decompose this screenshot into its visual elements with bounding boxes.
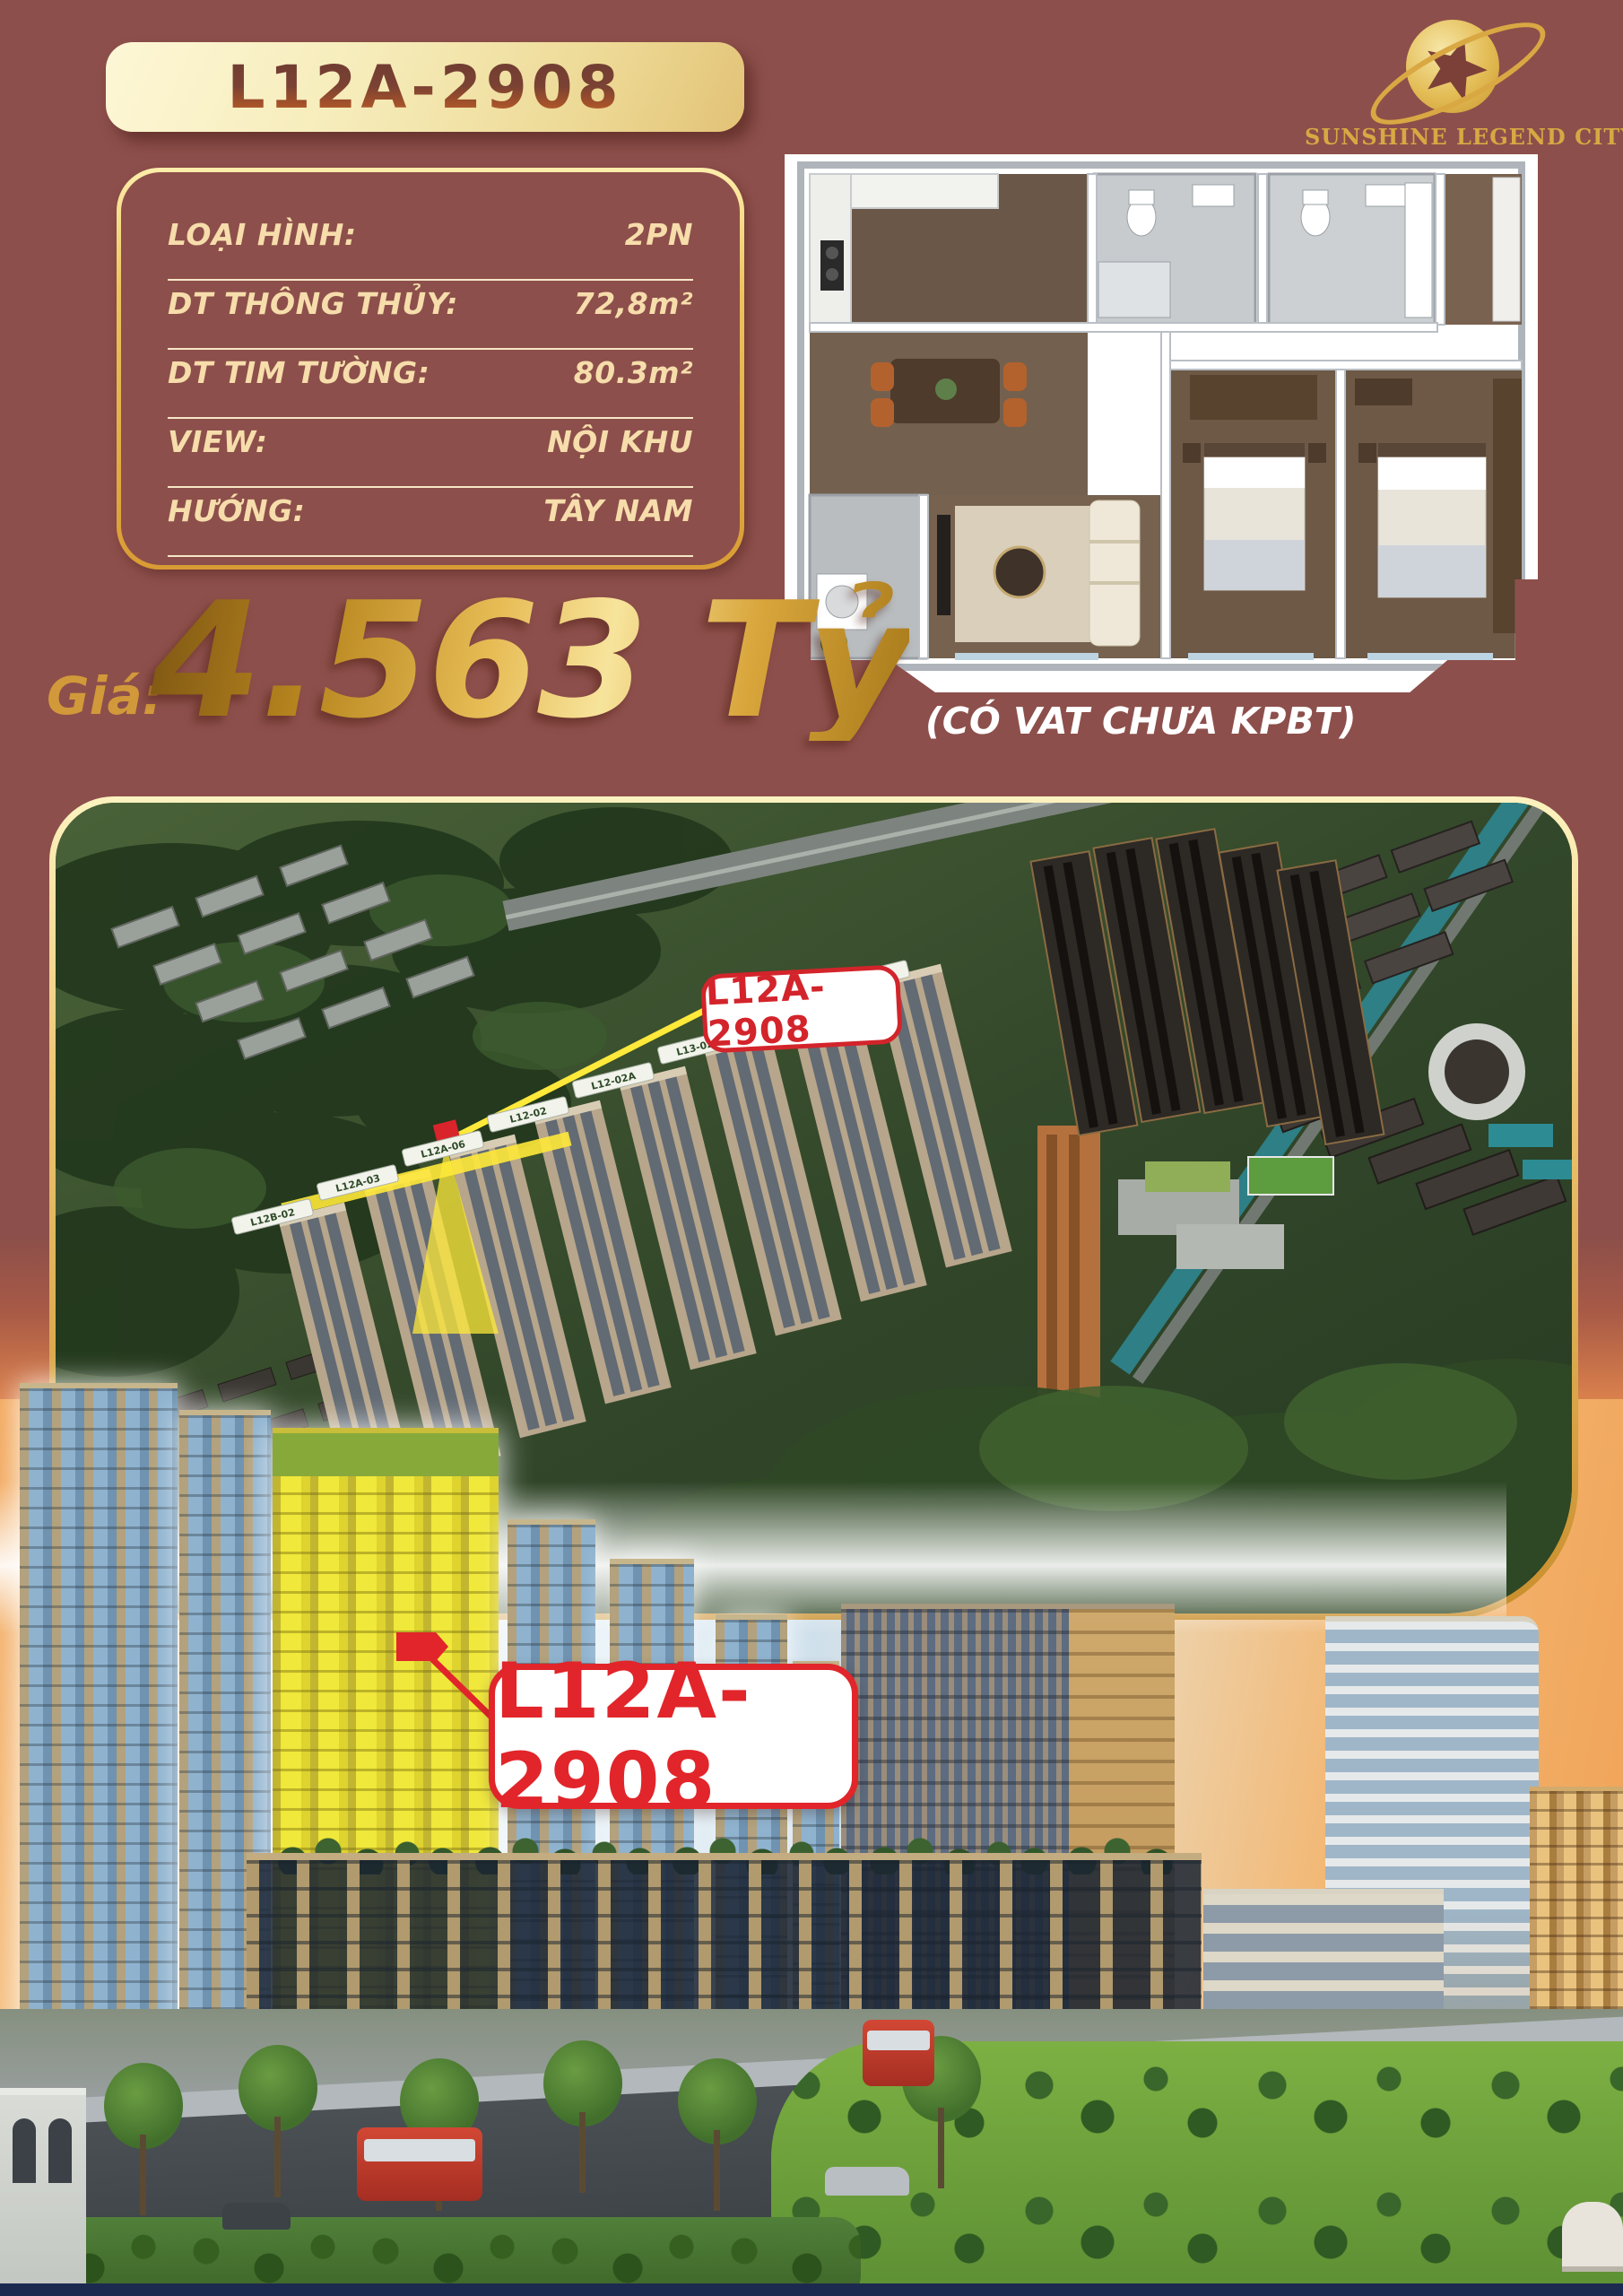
bedroom-1 bbox=[1170, 370, 1336, 658]
poster-page: { "page": {"width": 1810, "height": 2560… bbox=[0, 0, 1623, 2296]
bedroom-2 bbox=[1345, 370, 1522, 658]
aerial-unit-badge-text: L12A-2908 bbox=[705, 963, 899, 1056]
brand-name: SUNSHINE LEGEND CITY bbox=[1305, 124, 1610, 150]
spec-label: HƯỚNG: bbox=[168, 493, 305, 528]
dining-area bbox=[810, 325, 1088, 495]
spec-row-view: VIEW: NỘI KHU bbox=[168, 419, 693, 488]
spec-row-net-area: DT THÔNG THỦY: 72,8m² bbox=[168, 281, 693, 350]
spec-value: NỘI KHU bbox=[547, 424, 693, 459]
foyer bbox=[1439, 174, 1522, 325]
spec-value: 72,8m² bbox=[574, 286, 693, 321]
footer-strip bbox=[0, 2283, 1623, 2296]
kitchen bbox=[810, 174, 1088, 325]
spec-row-type: LOẠI HÌNH: 2PN bbox=[168, 212, 693, 281]
spec-label: VIEW: bbox=[168, 424, 267, 459]
bathroom-2 bbox=[1269, 174, 1435, 325]
spec-table: LOẠI HÌNH: 2PN DT THÔNG THỦY: 72,8m² DT … bbox=[121, 172, 740, 565]
bathroom-1 bbox=[1094, 174, 1255, 325]
spec-value: TÂY NAM bbox=[543, 493, 693, 528]
spec-value: 80.3m² bbox=[574, 355, 693, 390]
dark-tower-cluster bbox=[1031, 829, 1384, 1144]
price-vat-note: (CÓ VAT CHƯA KPBT) bbox=[925, 700, 1356, 743]
street-unit-badge-text: L12A-2908 bbox=[495, 1647, 852, 1826]
price-prefix: Giá: bbox=[47, 665, 163, 726]
spec-label: LOẠI HÌNH: bbox=[168, 217, 357, 252]
spec-label: DT TIM TƯỜNG: bbox=[168, 355, 430, 390]
brand-logo: SUNSHINE LEGEND CITY bbox=[1305, 14, 1610, 151]
street-unit-badge: L12A-2908 bbox=[489, 1664, 858, 1809]
spec-table-frame: LOẠI HÌNH: 2PN DT THÔNG THỦY: 72,8m² DT … bbox=[117, 168, 744, 570]
aerial-unit-badge: L12A-2908 bbox=[700, 964, 903, 1053]
spec-value: 2PN bbox=[625, 217, 693, 252]
spec-row-gross-area: DT TIM TƯỜNG: 80.3m² bbox=[168, 350, 693, 419]
price-amount: 4.563 Tỷ bbox=[151, 581, 909, 741]
collage-glow bbox=[0, 1482, 1506, 1634]
spec-label: DT THÔNG THỦY: bbox=[168, 286, 458, 321]
window-strips bbox=[955, 653, 1493, 660]
warm-tower bbox=[1037, 1126, 1100, 1404]
spec-row-direction: HƯỚNG: TÂY NAM bbox=[168, 488, 693, 557]
unit-code-badge: L12A-2908 bbox=[106, 42, 744, 132]
living-room bbox=[926, 495, 1161, 658]
unit-code-text: L12A-2908 bbox=[227, 53, 622, 122]
